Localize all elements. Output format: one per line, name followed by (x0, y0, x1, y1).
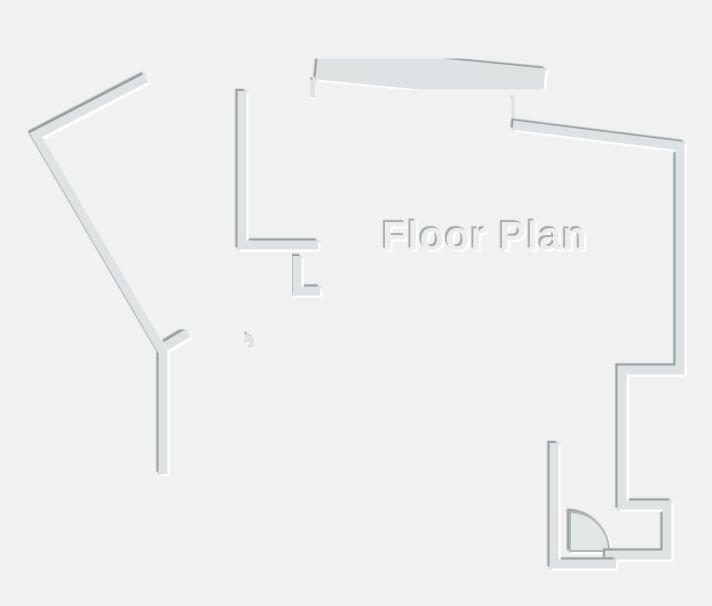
floor-plan-title: Floor Plan (382, 215, 588, 260)
floor-plan-canvas: Floor Plan (0, 0, 712, 606)
wall-partition-upper-left-b (242, 91, 318, 245)
walls-group (36, 63, 680, 564)
door-swing (570, 512, 609, 551)
wall-exterior-right (513, 125, 680, 555)
floor-plan-drawing (0, 0, 712, 606)
wall-closet-corner-lower (297, 256, 320, 291)
wall-bay-connector-left (311, 80, 314, 97)
wall-exterior-left (36, 78, 163, 474)
wall-door-jamb-step (246, 334, 252, 347)
wall-bay-band-top (317, 63, 544, 85)
